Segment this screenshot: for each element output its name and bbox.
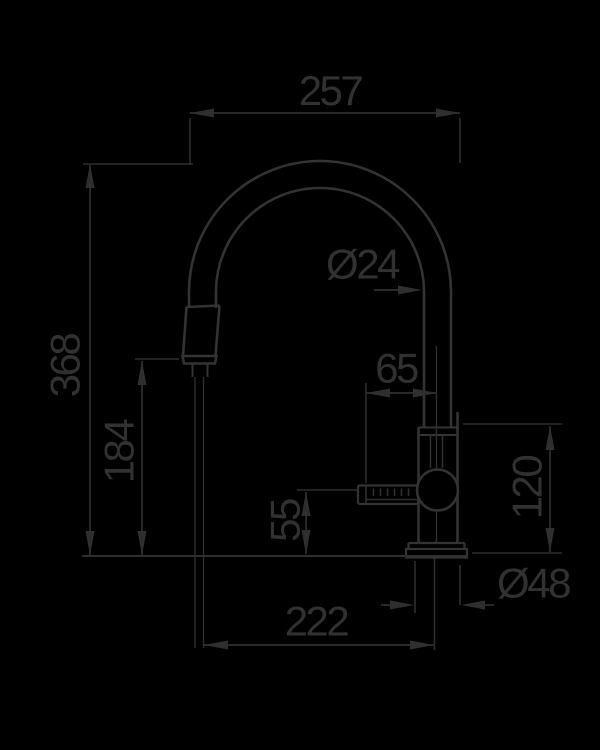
arrowhead-up	[138, 361, 147, 385]
arrowhead-right	[390, 601, 414, 610]
handle-lever	[358, 486, 419, 505]
arrowhead-up	[86, 164, 95, 188]
arrowhead-up	[546, 426, 555, 450]
dimension-top-width: 257	[190, 67, 460, 118]
sprayhead-face-cap	[183, 356, 217, 364]
dim-label-upper-body-height: 120	[504, 456, 551, 520]
dim-label-lever-height: 55	[262, 499, 309, 542]
sprayhead-left-edge	[183, 307, 187, 356]
arrowhead-down	[86, 531, 95, 555]
dim-label-spout-reach: 222	[285, 598, 349, 645]
dimension-outlet-height: 184	[96, 361, 147, 555]
dim-label-overall-height: 368	[42, 334, 89, 398]
dimension-overall-height: 368	[42, 164, 95, 555]
dim-label-spout-diameter: Ø24	[326, 241, 400, 288]
faucet-outline	[183, 161, 468, 558]
sprayhead-joint-line	[187, 306, 220, 308]
arrowhead-left	[190, 109, 214, 118]
arrowhead-left	[204, 641, 228, 650]
arrowhead-right	[398, 286, 422, 295]
dimension-lever-height: 55	[262, 492, 311, 554]
dim-label-base-diameter: Ø48	[497, 560, 570, 607]
spout-inner-curve	[216, 188, 424, 428]
dim-label-lever-length: 65	[375, 345, 418, 392]
dimension-lever-length: 65	[366, 345, 437, 398]
dim-label-top-width: 257	[299, 67, 363, 114]
dimension-base-diameter: Ø48	[381, 560, 570, 610]
arrowhead-down	[138, 531, 147, 555]
handle-joint-sphere	[417, 470, 458, 511]
faucet-dimension-diagram: 257 368 184 Ø24 65 55 120	[0, 0, 600, 750]
extension-lines	[82, 118, 562, 650]
arrowhead-right	[410, 641, 434, 650]
arrowhead-down	[546, 528, 555, 552]
lever-grip-hatching	[374, 489, 409, 497]
aerator-stub	[193, 364, 208, 378]
body-top-joints	[417, 428, 459, 436]
dimension-spout-diameter: Ø24	[326, 241, 422, 295]
dimension-upper-body-height: 120	[504, 426, 555, 552]
arrowhead-left	[461, 601, 485, 610]
arrowhead-right	[436, 109, 460, 118]
technical-drawing-canvas: 257 368 184 Ø24 65 55 120	[0, 0, 600, 750]
dim-label-outlet-height: 184	[96, 419, 143, 484]
sprayhead-right-edge	[216, 306, 220, 357]
